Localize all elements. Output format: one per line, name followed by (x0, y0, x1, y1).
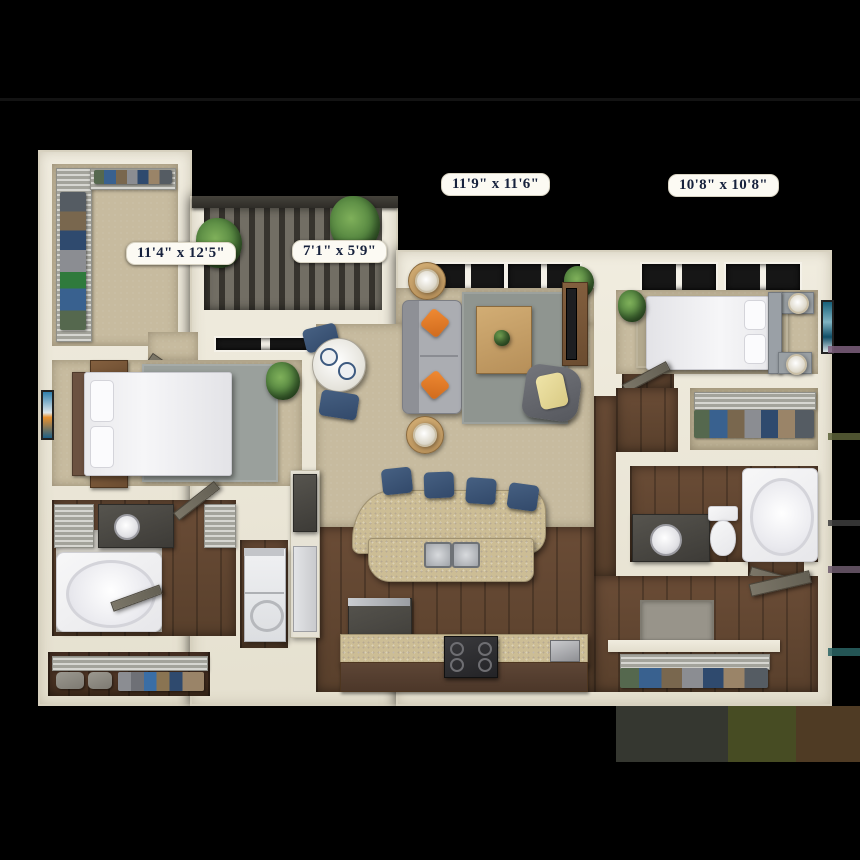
refrigerator (293, 546, 317, 632)
bedroom-right-window (640, 262, 718, 292)
coat-closet-wall (608, 640, 780, 652)
tv-screen (566, 288, 577, 360)
sofa-cushion-divider (420, 355, 458, 357)
potted-plant (618, 290, 646, 322)
range-burner (478, 642, 492, 656)
pillow (90, 426, 114, 468)
bar-stool (424, 471, 455, 498)
hanging-clothes (60, 192, 86, 330)
pantry-door (293, 474, 317, 532)
table-lamp (786, 354, 807, 375)
pillow (744, 334, 766, 364)
doormat (640, 600, 714, 644)
render-artifact (0, 98, 860, 101)
floorplan-render: 11'9" x 11'6" 10'8" x 10'8" 11'4" x 12'5… (0, 0, 860, 860)
render-artifact (828, 648, 860, 656)
range-burner (478, 658, 492, 672)
storage-basket (56, 672, 84, 689)
render-artifact (828, 346, 860, 353)
render-artifact (796, 706, 860, 762)
pillow (744, 300, 766, 330)
kitchen-island-top (348, 598, 410, 606)
vessel-sink (650, 524, 682, 556)
linen-closet-shelf (204, 504, 236, 548)
render-artifact (828, 566, 860, 573)
shoe-row (118, 672, 204, 691)
table-lamp (788, 293, 809, 314)
hallway-floor (594, 396, 616, 576)
bar-stool (506, 482, 539, 512)
dimension-text: 7'1" x 5'9" (303, 243, 376, 259)
storage-basket (88, 672, 112, 689)
toilet-bowl (710, 520, 736, 556)
washer-dryer-divider (244, 592, 284, 594)
washer-control-panel (244, 548, 284, 556)
dimension-label-bedroom-right: 10'8" x 10'8" (668, 174, 779, 197)
hanging-clothes (620, 668, 768, 688)
dimension-label-living-room: 11'9" x 11'6" (441, 173, 550, 196)
dimension-text: 11'9" x 11'6" (452, 176, 539, 192)
closet-wire-shelf (694, 392, 816, 410)
render-artifact (728, 706, 796, 762)
render-artifact (616, 706, 728, 762)
range-burner (450, 642, 464, 656)
render-artifact (828, 433, 860, 440)
table-plant (494, 330, 510, 346)
dryer-door (250, 600, 284, 632)
closet-wire-shelf (52, 656, 208, 671)
range-burner (450, 658, 464, 672)
table-lamp (413, 423, 437, 447)
pillow (90, 380, 114, 422)
dimension-label-bedroom-left: 11'4" x 12'5" (126, 242, 236, 265)
toilet-tank (708, 506, 738, 521)
place-setting (320, 348, 338, 366)
hanging-clothes (94, 170, 172, 184)
table-lamp (415, 269, 439, 293)
bathtub-basin (750, 478, 814, 556)
dimension-label-patio: 7'1" x 5'9" (292, 240, 387, 263)
dimension-text: 10'8" x 10'8" (679, 177, 768, 193)
potted-plant (266, 362, 300, 400)
render-artifact (828, 520, 860, 526)
vanity-sink (114, 514, 140, 540)
kitchen-sink (452, 542, 480, 568)
bedroom-right-window (724, 262, 802, 292)
wall-art (41, 390, 54, 440)
place-setting (338, 362, 356, 380)
dimension-text: 11'4" x 12'5" (137, 245, 225, 261)
linen-closet-shelf (54, 504, 94, 548)
bar-stool (381, 467, 414, 496)
hanging-clothes (694, 410, 814, 438)
bar-stool (465, 477, 497, 505)
hallway-floor (616, 388, 678, 452)
toaster-oven (550, 640, 580, 662)
kitchen-sink (424, 542, 452, 568)
